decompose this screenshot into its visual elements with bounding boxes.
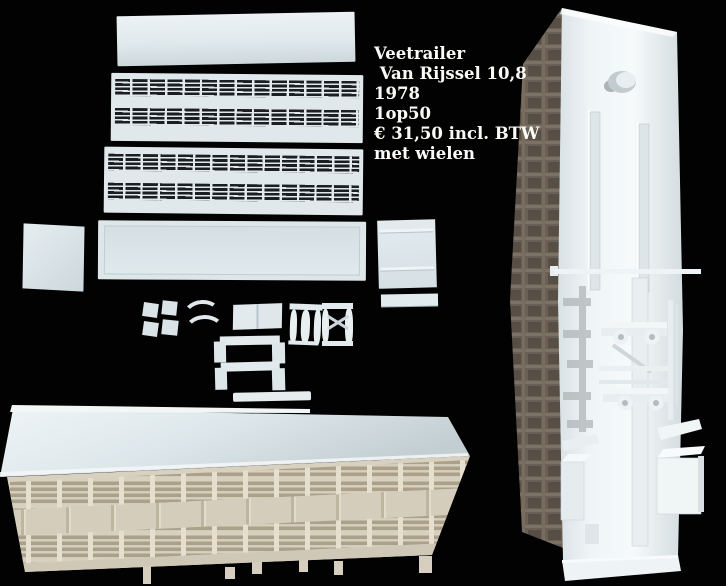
part-plate-pair: [233, 303, 282, 330]
part-axle-assembly: [322, 301, 353, 347]
part-vented-side-panel-2: [104, 147, 364, 216]
assembled-trailer-model: [0, 398, 478, 586]
axle-lug: [313, 309, 321, 345]
frame-leg: [215, 368, 228, 390]
crossbar: [554, 269, 701, 274]
part-small-square: [161, 300, 177, 315]
caption-line-price: € 31,50 incl. BTW: [374, 124, 539, 144]
caption-line-brand: Van Rijssel 10,8: [374, 64, 539, 84]
part-axle-assembly: [288, 301, 323, 346]
part-small-square: [142, 321, 159, 337]
caption: Veetrailer Van Rijssel 10,8 1978 1op50 €…: [374, 44, 539, 164]
axle-bar: [322, 341, 353, 346]
trailer-wall-bands: [10, 460, 470, 586]
door-ridge: [379, 228, 433, 232]
part-roof-panel: [117, 12, 356, 67]
frame-leg: [214, 341, 226, 362]
caption-line-title: Veetrailer: [374, 44, 539, 64]
part-small-square: [142, 302, 159, 318]
floor-panel-frame: [104, 225, 360, 275]
part-support-frame: [215, 361, 286, 392]
caption-line-year: 1978: [374, 84, 539, 104]
part-front-end-panel: [22, 223, 84, 291]
part-rear-door-panel: [377, 219, 437, 288]
photo-canvas: Veetrailer Van Rijssel 10,8 1978 1op50 €…: [0, 0, 726, 586]
central-rail: [632, 278, 648, 546]
vent-slat-row: [108, 154, 359, 174]
part-bumper-strip: [381, 294, 438, 307]
storage-box-right: [657, 446, 705, 514]
axle-lug: [300, 310, 310, 343]
caption-line-wheels: met wielen: [374, 144, 539, 164]
door-ridge: [380, 266, 434, 270]
part-support-frame: [214, 335, 285, 364]
part-floor-panel: [98, 220, 366, 280]
frame-bar: [220, 335, 280, 345]
vent-slat-row: [115, 108, 359, 127]
axle-bar: [288, 340, 318, 345]
chassis-step: [585, 524, 599, 544]
axle-lug: [289, 309, 297, 343]
part-vented-side-panel-1: [111, 73, 364, 143]
vent-slat-row: [115, 79, 359, 98]
frame-leg: [272, 368, 286, 390]
trailer-roof-back-edge: [10, 405, 310, 413]
part-small-square: [161, 319, 178, 336]
vent-slat-row: [108, 183, 359, 203]
caption-line-scale: 1op50: [374, 104, 539, 124]
